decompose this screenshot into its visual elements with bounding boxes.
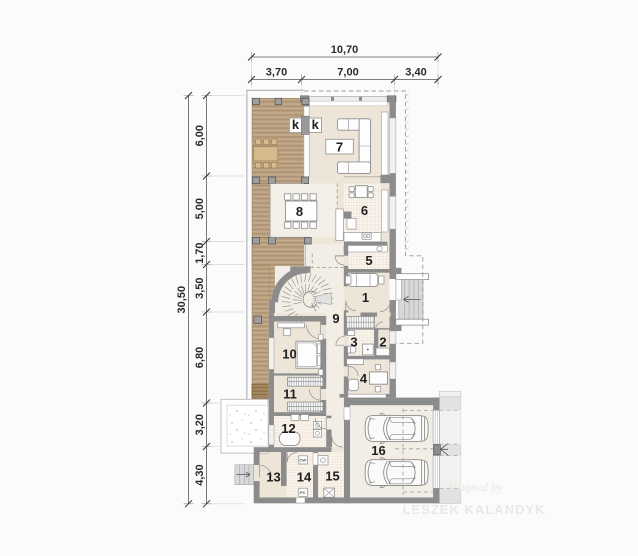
svg-text:7,00: 7,00 [337,67,358,79]
svg-text:PC: PC [300,490,306,495]
svg-text:4,30: 4,30 [194,464,206,485]
svg-text:16: 16 [371,443,385,458]
svg-text:CW: CW [299,458,306,463]
svg-text:3,20: 3,20 [194,414,206,435]
svg-text:1: 1 [362,290,369,305]
svg-text:k: k [292,117,300,132]
svg-text:designed by: designed by [446,480,504,494]
svg-text:3: 3 [350,335,357,350]
svg-text:30,50: 30,50 [176,286,188,314]
svg-text:k: k [312,117,320,132]
svg-text:10,70: 10,70 [331,44,359,56]
svg-text:14: 14 [297,470,312,485]
svg-text:3,50: 3,50 [194,277,206,298]
svg-text:6,00: 6,00 [194,125,206,146]
svg-text:3,70: 3,70 [266,67,287,79]
svg-text:4: 4 [360,371,368,386]
svg-text:3,40: 3,40 [405,67,426,79]
svg-text:11: 11 [283,387,297,402]
svg-text:12: 12 [281,421,295,436]
svg-text:13: 13 [266,470,280,485]
svg-text:LESZEK KALANDYK: LESZEK KALANDYK [403,502,546,517]
svg-text:6,80: 6,80 [194,347,206,368]
svg-text:6: 6 [361,203,368,218]
svg-text:8: 8 [296,204,303,219]
svg-text:15: 15 [325,469,339,484]
svg-text:7: 7 [336,140,343,155]
svg-text:5,00: 5,00 [194,198,206,219]
svg-text:9: 9 [332,311,339,326]
svg-text:2: 2 [379,335,386,350]
svg-text:1,70: 1,70 [194,242,206,263]
svg-text:5: 5 [365,253,372,268]
svg-text:10: 10 [282,347,296,362]
